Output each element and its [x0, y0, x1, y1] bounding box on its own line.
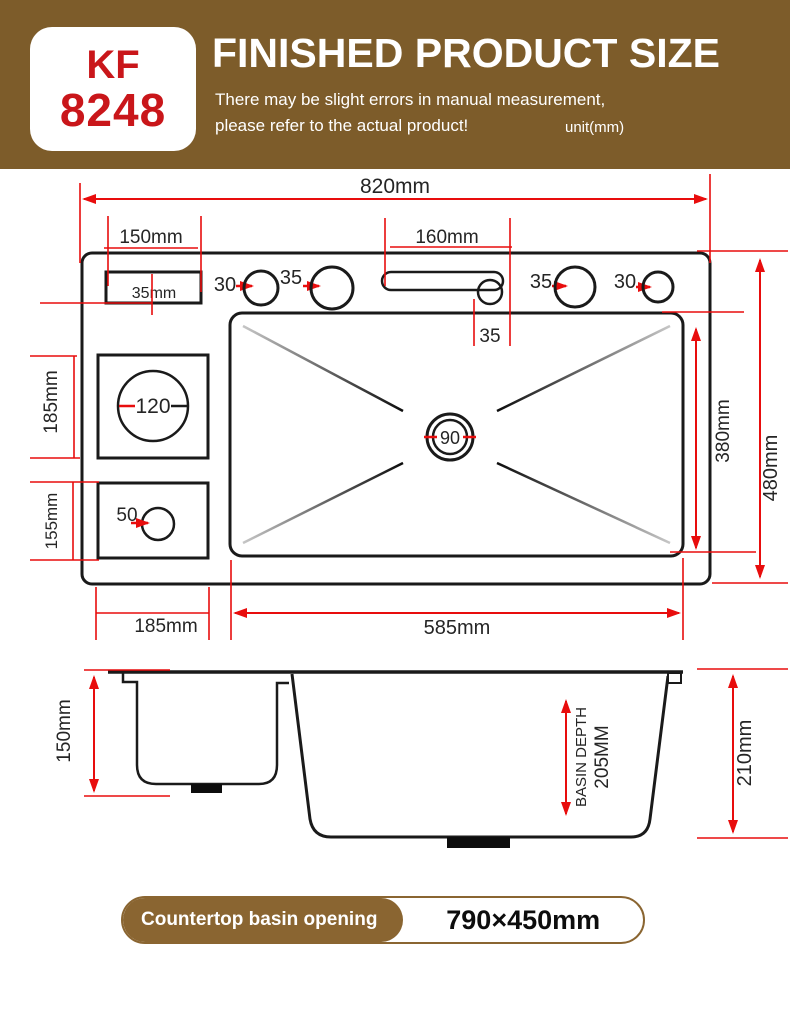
basin-diagonal-bottom-left: [243, 463, 403, 543]
countertop-opening-label: Countertop basin opening: [123, 898, 403, 942]
soap-dispenser-dim-label: 35mm: [132, 285, 176, 302]
main-basin-drain: [447, 837, 510, 848]
technical-drawing: 90 35mm 30 35 35 30: [0, 0, 790, 1010]
top-view: 90 35mm 30 35 35 30: [30, 174, 788, 640]
product-size-sheet: KF 8248 FINISHED PRODUCT SIZE There may …: [0, 0, 790, 1010]
countertop-opening-pill: Countertop basin opening 790×450mm: [121, 896, 645, 944]
left-basin-drain: [191, 784, 222, 793]
side-view: 150mm BASIN DEPTH 205MM 210mm: [54, 669, 788, 848]
dim-160-label: 160mm: [415, 227, 478, 248]
dim-210-label: 210mm: [734, 720, 756, 787]
hole-120-label: 120: [135, 395, 170, 418]
dim-185B-label: 185mm: [134, 616, 197, 637]
dim-150S-label: 150mm: [54, 699, 75, 762]
mounting-clip: [668, 673, 681, 683]
basin-diagonal-bottom-right: [497, 463, 670, 543]
hole-30-left-label: 30: [214, 274, 236, 296]
hole-35-right-label: 35: [530, 271, 552, 293]
dim-380-label: 380mm: [713, 399, 734, 462]
hole-30-left-circle: [244, 271, 278, 305]
basin-diagonal-top-right: [497, 326, 670, 411]
dim-150-label: 150mm: [119, 227, 182, 248]
hole-35-left-circle: [311, 267, 353, 309]
hole-35-left-label: 35: [280, 267, 302, 289]
left-basin-profile: [123, 672, 289, 784]
dim-35-slot-label: 35: [479, 326, 500, 347]
waterfall-slot-hole: [478, 280, 502, 304]
dim-820-label: 820mm: [360, 175, 430, 198]
dim-155-label: 155mm: [42, 493, 61, 550]
countertop-opening-value: 790×450mm: [403, 898, 643, 942]
basin-depth-label: BASIN DEPTH: [573, 707, 590, 807]
dim-480-label: 480mm: [760, 435, 782, 502]
lower-square-hole: [98, 483, 208, 558]
basin-diagonal-top-left: [243, 326, 403, 411]
dim-185L-label: 185mm: [41, 370, 62, 433]
hole-30-right-label: 30: [614, 271, 636, 293]
drain-dim-label: 90: [440, 428, 460, 448]
dim-585-label: 585mm: [424, 617, 491, 639]
basin-depth-value: 205MM: [592, 725, 613, 788]
